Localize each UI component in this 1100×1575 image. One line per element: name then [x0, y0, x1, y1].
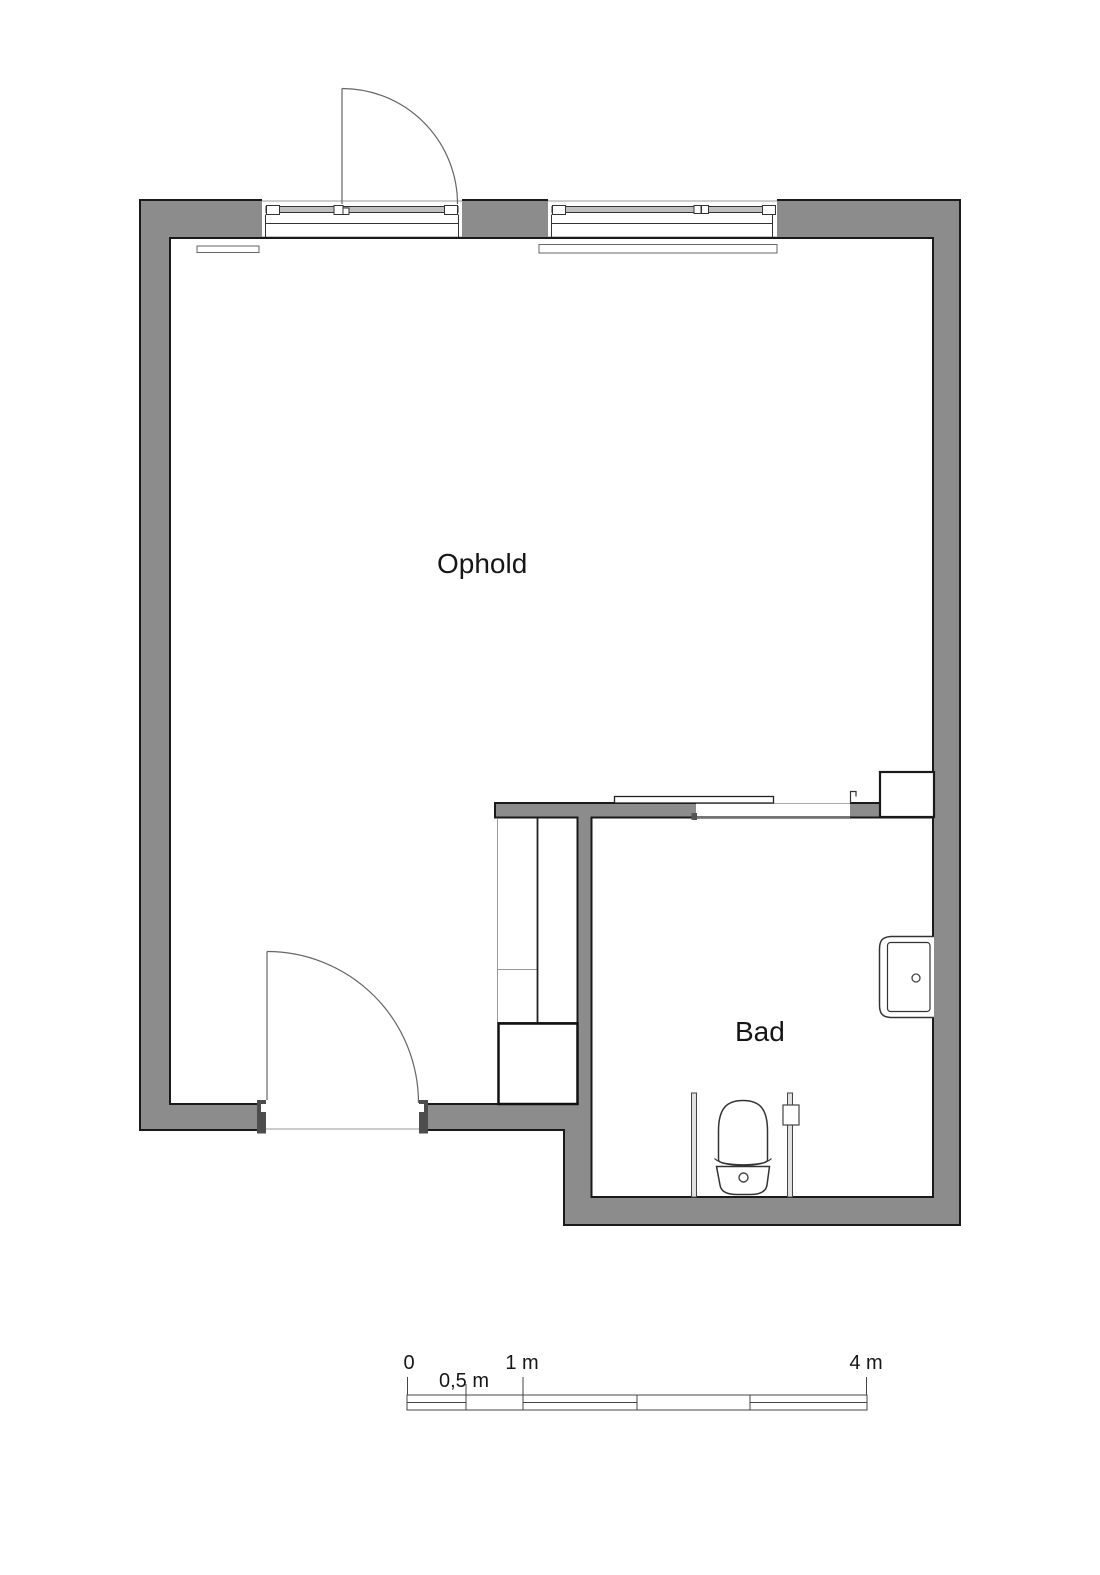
door-swing-arc: [267, 952, 419, 1104]
entrance-door: [257, 952, 428, 1135]
window-end-block: [763, 206, 776, 215]
window-unit: [548, 197, 777, 237]
scale-tick-label-05m: 0,5 m: [439, 1370, 489, 1392]
floor-plan: Ophold Bad 0 0,5 m 1 m 4 m: [0, 0, 1100, 1575]
grab-bar: [692, 1093, 697, 1197]
scale-bar: 0 0,5 m 1 m 4 m: [403, 1352, 882, 1410]
toilet-icon: [715, 1101, 772, 1195]
room-label-bad: Bad: [735, 1016, 785, 1047]
closet-divider-lines: [498, 818, 538, 1023]
window-opening: [548, 197, 777, 237]
toilet-flush-button: [739, 1173, 748, 1182]
door-handle-mark: [343, 208, 349, 215]
bathroom-fixtures: [692, 937, 935, 1198]
window-sash-mark: [694, 206, 701, 214]
closet-partition-lines: [498, 818, 578, 1023]
sliding-door-opening: [696, 802, 850, 818]
toilet-bowl: [719, 1101, 768, 1165]
door-hinge-mark: [334, 206, 343, 215]
balcony-door-swing-arc: [342, 89, 458, 205]
sink-basin: [888, 943, 931, 1012]
door-jamb-notch: [419, 1104, 424, 1112]
paper-holder: [783, 1105, 799, 1125]
room-label-ophold: Ophold: [437, 548, 527, 579]
window-end-block: [267, 206, 280, 215]
shaft-niche-box: [880, 772, 934, 817]
sliding-door-jamb: [692, 813, 698, 820]
closet: [498, 818, 578, 1104]
scale-tick-label-4m: 4 m: [849, 1352, 882, 1374]
window-sash-mark: [702, 206, 709, 214]
window-balcony-door-unit: [262, 89, 462, 238]
scale-tick-label-0: 0: [403, 1352, 414, 1374]
sliding-door-leaf: [615, 797, 774, 804]
door-jamb-notch: [261, 1104, 266, 1112]
sink-icon: [880, 937, 935, 1018]
closet-cabinet-box: [499, 1024, 578, 1105]
scale-tick-label-1m: 1 m: [505, 1352, 538, 1374]
radiator-icon: [539, 245, 777, 254]
window-end-block: [445, 206, 458, 215]
floor-plan-canvas: Ophold Bad 0 0,5 m 1 m 4 m: [0, 0, 1100, 1575]
sink-drain: [912, 974, 920, 982]
radiator-icon: [197, 246, 259, 253]
window-glazing: [266, 207, 458, 213]
window-opening: [262, 197, 462, 237]
window-glazing: [552, 207, 773, 213]
sliding-door-jamb-hook: [851, 792, 857, 804]
window-end-block: [553, 206, 566, 215]
